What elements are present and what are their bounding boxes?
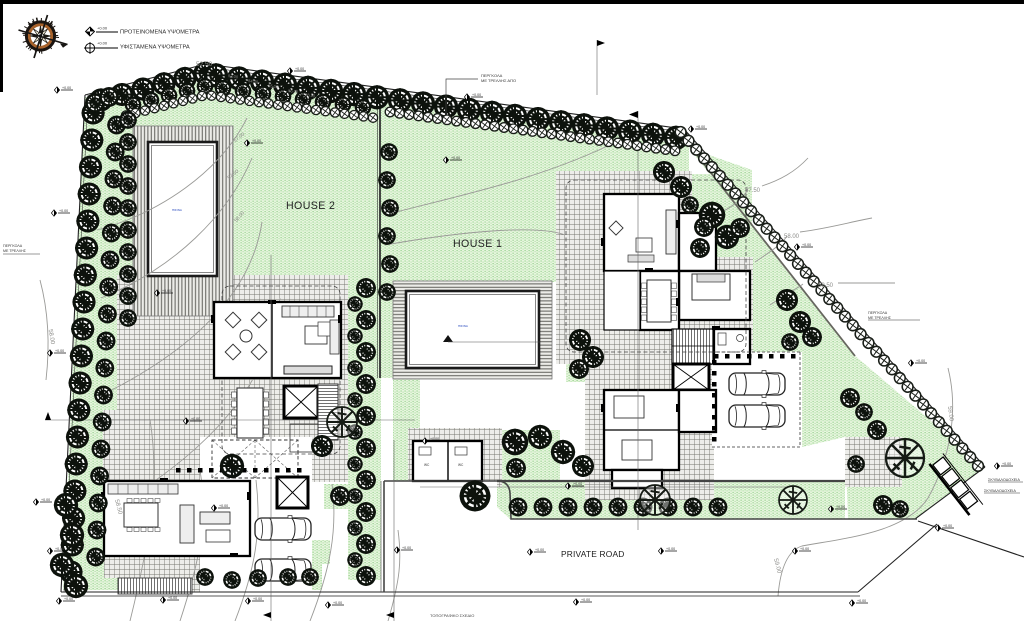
svg-text:PRIVATE ROAD: PRIVATE ROAD <box>561 549 625 559</box>
svg-text:WC: WC <box>458 463 464 467</box>
svg-text:HOUSE 2: HOUSE 2 <box>286 200 335 212</box>
svg-text:58.00: 58.00 <box>784 234 800 240</box>
svg-text:57.50: 57.50 <box>745 188 761 194</box>
svg-text:ΠΡΟΤΕΙΝΟΜΕΝΑ ΥΨΟΜΕΤΡΑ: ΠΡΟΤΕΙΝΟΜΕΝΑ ΥΨΟΜΕΤΡΑ <box>120 30 200 36</box>
svg-text:ΠΙΣΙΝΑ: ΠΙΣΙΝΑ <box>172 208 182 212</box>
svg-text:ΥΦΙΣΤΑΜΕΝΑ ΥΨΟΜΕΤΡΑ: ΥΦΙΣΤΑΜΕΝΑ ΥΨΟΜΕΤΡΑ <box>120 45 190 51</box>
svg-text:58.50: 58.50 <box>818 283 834 289</box>
svg-text:WC: WC <box>424 463 430 467</box>
svg-text:ΜΕ ΤΡΕΛΛΗΣ ΑΠΟ: ΜΕ ΤΡΕΛΛΗΣ ΑΠΟ <box>481 78 516 83</box>
svg-text:+0.00: +0.00 <box>97 26 108 31</box>
svg-text:52.50: 52.50 <box>196 61 213 68</box>
svg-text:ΣΚΥΒΑΛΟΔΟΧΕΙΑ: ΣΚΥΒΑΛΟΔΟΧΕΙΑ <box>984 489 1016 493</box>
svg-text:ΠΕΡΓΚΟΛΑ: ΠΕΡΓΚΟΛΑ <box>3 244 23 248</box>
svg-text:ΠΕΡΓΚΟΛΑ: ΠΕΡΓΚΟΛΑ <box>868 311 888 315</box>
svg-text:HOUSE 1: HOUSE 1 <box>453 238 502 250</box>
svg-text:ΣΚΥΒΑΛΟΔΟΧΕΙΑ: ΣΚΥΒΑΛΟΔΟΧΕΙΑ <box>988 478 1020 482</box>
svg-text:ΜΕ ΤΡΕΛΛΗΣ: ΜΕ ΤΡΕΛΛΗΣ <box>3 249 27 253</box>
svg-text:+0.00: +0.00 <box>97 41 108 46</box>
svg-text:ΠΙΣΙΝΑ: ΠΙΣΙΝΑ <box>458 324 468 328</box>
svg-text:ΤΟΠΟΓΡΑΦΙΚΟ ΣΧΕΔΙΟ: ΤΟΠΟΓΡΑΦΙΚΟ ΣΧΕΔΙΟ <box>430 613 474 618</box>
svg-text:ΜΕ ΤΡΕΛΛΗΣ: ΜΕ ΤΡΕΛΛΗΣ <box>868 316 892 320</box>
